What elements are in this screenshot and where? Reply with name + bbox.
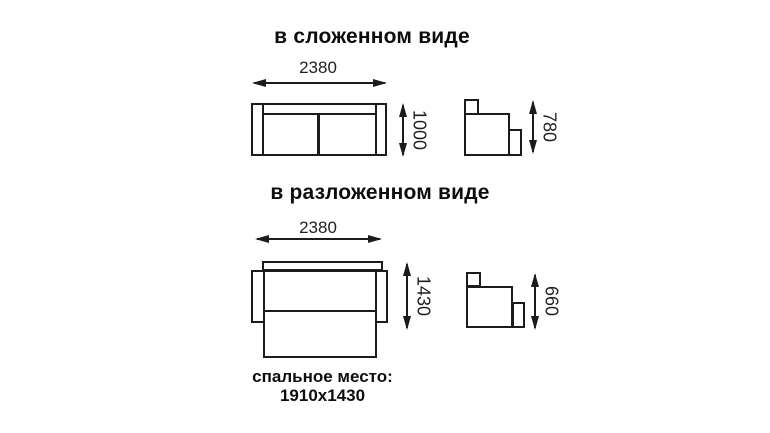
sofa-dimensions-diagram: в сложенном виде 2380 1000: [0, 0, 770, 433]
arrowhead-down-icon: [531, 316, 539, 330]
mattress-block: [263, 310, 377, 358]
arrowhead-down-icon: [399, 143, 407, 157]
arrow-shaft: [257, 238, 380, 240]
folded-width-label: 2380: [272, 58, 364, 78]
side-step-block: [512, 302, 525, 328]
folded-width-arrow: [252, 76, 387, 90]
arrowhead-right-icon: [373, 79, 387, 87]
seat-divider-line: [317, 113, 320, 156]
sleeping-area-caption-line1: спальное место:: [230, 367, 415, 387]
arrowhead-left-icon: [252, 79, 266, 87]
arrowhead-up-icon: [529, 100, 537, 114]
arrowhead-right-icon: [368, 235, 382, 243]
side-step-block: [508, 129, 522, 156]
arrow-shaft: [254, 82, 385, 84]
folded-height-label: 1000: [408, 103, 430, 157]
unfolded-width-arrow: [255, 232, 382, 246]
unfolded-side-height-label: 660: [540, 273, 562, 330]
side-body-block: [464, 113, 510, 156]
folded-view-title: в сложенном виде: [232, 25, 512, 49]
arrowhead-up-icon: [399, 103, 407, 117]
folded-side-height-label: 780: [538, 100, 560, 154]
arrowhead-left-icon: [255, 235, 269, 243]
backrest-strip: [262, 261, 383, 272]
armrest-left-line: [262, 104, 264, 154]
armrest-right-line: [375, 104, 377, 154]
side-body-block: [466, 286, 513, 328]
unfolded-view-title: в разложенном виде: [240, 181, 520, 205]
arrowhead-down-icon: [403, 316, 411, 330]
unfolded-depth-label: 1430: [412, 262, 434, 330]
arrowhead-down-icon: [529, 140, 537, 154]
arrowhead-up-icon: [531, 273, 539, 287]
arrowhead-up-icon: [403, 262, 411, 276]
sleeping-area-caption-line2: 1910х1430: [230, 386, 415, 406]
